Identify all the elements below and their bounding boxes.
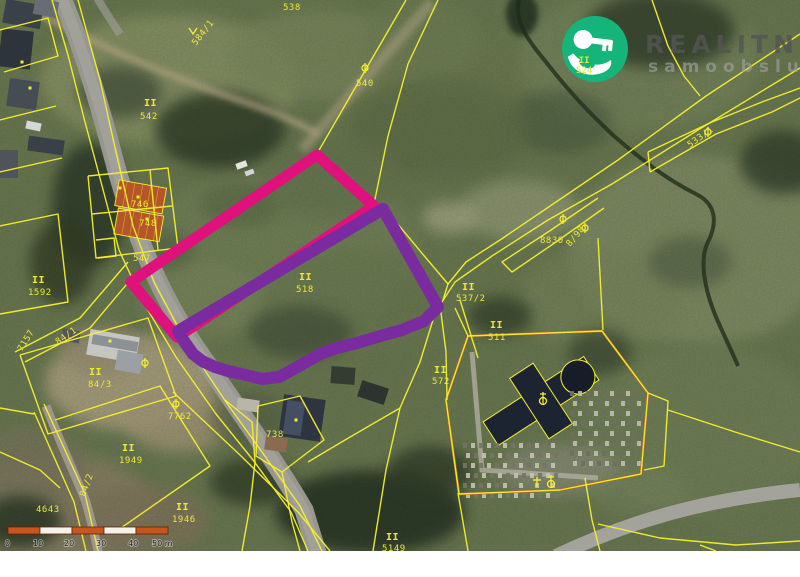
parcel-label-547: 547 bbox=[133, 254, 151, 264]
parcel-label-572: 572 bbox=[432, 377, 450, 387]
parcel-label-538: 538 bbox=[283, 3, 301, 13]
scale-label-3: 30 bbox=[96, 539, 106, 548]
parcel-label-II: II bbox=[299, 272, 312, 283]
parcel-label-5149: 5149 bbox=[382, 544, 406, 551]
scale-label-4: 40 bbox=[128, 539, 138, 548]
parcel-label-746: 746 bbox=[131, 200, 149, 210]
scale-label-5: 50 m bbox=[152, 539, 173, 548]
parcel-label-738: 738 bbox=[266, 430, 284, 440]
scale-label-1: 10 bbox=[33, 539, 43, 548]
parcel-label-II: II bbox=[122, 443, 135, 454]
scale-label-2: 20 bbox=[64, 539, 74, 548]
parcel-label-II: II bbox=[144, 98, 157, 109]
parcel-label-II: II bbox=[434, 365, 447, 376]
parcel-label-1592: 1592 bbox=[28, 288, 52, 298]
parcel-label-540: 540 bbox=[356, 79, 374, 89]
parcel-label-511: 511 bbox=[488, 333, 506, 343]
parcel-label-537-2: 537/2 bbox=[456, 294, 486, 304]
map-canvas: 538540II542584/1746748547II1592715784/1I… bbox=[0, 0, 800, 551]
parcel-label-1946: 1946 bbox=[172, 515, 196, 525]
parcel-label-II: II bbox=[32, 275, 45, 286]
parcel-label-II: II bbox=[89, 367, 102, 378]
scale-label-0: 0 bbox=[5, 539, 10, 548]
parcel-label-7762: 7762 bbox=[168, 412, 192, 422]
parcel-label-II: II bbox=[176, 502, 189, 513]
parcel-label-4643: 4643 bbox=[36, 505, 60, 515]
parcel-label-84-3: 84/3 bbox=[88, 380, 112, 390]
parcel-label-748: 748 bbox=[139, 219, 157, 229]
aerial-cadastral-map: 538540II542584/1746748547II1592715784/1I… bbox=[0, 0, 800, 551]
screenshot-root: 538540II542584/1746748547II1592715784/1I… bbox=[0, 0, 800, 577]
parcel-label-542: 542 bbox=[140, 112, 158, 122]
parcel-label-518: 518 bbox=[296, 285, 314, 295]
parcel-label-II: II bbox=[462, 282, 475, 293]
parcel-label-II: II bbox=[386, 532, 399, 543]
parcel-label-8830: 8830 bbox=[540, 236, 564, 246]
parcel-label-II: II bbox=[490, 320, 503, 331]
parcel-label-1949: 1949 bbox=[119, 456, 143, 466]
